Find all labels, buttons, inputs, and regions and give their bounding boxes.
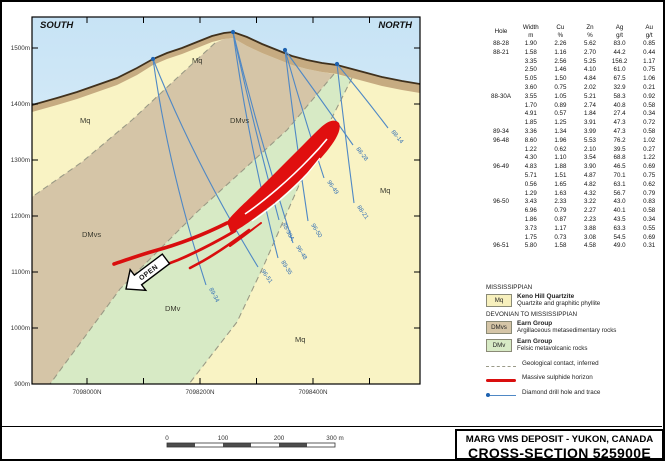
table-cell-zn: 4.10 <box>575 66 605 75</box>
table-cell-au: 0.58 <box>634 102 664 111</box>
table-cell-width: 3.55 <box>516 93 546 102</box>
table-cell-cu: 1.58 <box>546 242 576 251</box>
table-row: 96-50 3.43 2.33 3.22 43.0 0.83 <box>486 198 664 207</box>
table-cell-cu: 2.26 <box>546 40 576 49</box>
table-cell-au: 0.44 <box>634 49 664 58</box>
table-cell-au: 0.34 <box>634 110 664 119</box>
table-cell-hole <box>486 216 516 225</box>
table-cell-width: 1.75 <box>516 234 546 243</box>
table-cell-au: 0.92 <box>634 93 664 102</box>
table-cell-cu: 1.51 <box>546 172 576 181</box>
table-cell-au: 0.75 <box>634 66 664 75</box>
table-cell-hole: 89-34 <box>486 128 516 137</box>
table-cell-zn: 3.22 <box>575 198 605 207</box>
table-cell-ag: 32.9 <box>605 84 635 93</box>
unit-label-mq: Mq <box>380 186 390 195</box>
table-row: 88-28 1.90 2.26 5.62 83.0 0.85 <box>486 40 664 49</box>
table-cell-cu: 0.79 <box>546 207 576 216</box>
table-cell-hole: 88-30A <box>486 93 516 102</box>
northing-label: 7098400N <box>298 389 328 396</box>
legend-group-header: MISSISSIPPIAN <box>486 284 664 291</box>
col-header-cu: Cu <box>546 24 576 32</box>
table-cell-hole <box>486 110 516 119</box>
table-cell-cu: 1.10 <box>546 154 576 163</box>
table-cell-ag: 56.7 <box>605 190 635 199</box>
table-cell-zn: 2.74 <box>575 102 605 111</box>
figure-subtitle: MARG VMS DEPOSIT - YUKON, CANADA <box>457 434 662 445</box>
elevation-label: 1000m <box>11 325 30 332</box>
table-cell-width: 3.36 <box>516 128 546 137</box>
table-cell-cu: 0.87 <box>546 216 576 225</box>
elevation-label: 900m <box>14 381 30 388</box>
legend: MISSISSIPPIAN Mq Keno Hill Quartzite Qua… <box>486 284 664 402</box>
assay-table: Hole Width Cu Zn Ag Au m % % g/t g/t 88-… <box>486 24 664 251</box>
legend-symbol-label: Geological contact, inferred <box>522 360 599 367</box>
table-cell-au: 1.17 <box>634 58 664 67</box>
table-cell-ag: 47.3 <box>605 119 635 128</box>
table-cell-width: 1.22 <box>516 146 546 155</box>
table-cell-zn: 5.21 <box>575 93 605 102</box>
table-cell-zn: 2.23 <box>575 216 605 225</box>
table-cell-width: 1.58 <box>516 49 546 58</box>
table-row: 5.71 1.51 4.87 70.1 0.75 <box>486 172 664 181</box>
table-cell-width: 5.05 <box>516 75 546 84</box>
drill-collar-dot <box>231 30 235 34</box>
table-cell-au: 0.27 <box>634 146 664 155</box>
elevation-label: 1100m <box>11 269 30 276</box>
table-cell-width: 2.50 <box>516 66 546 75</box>
elevation-label: 1400m <box>11 101 30 108</box>
table-cell-ag: 46.5 <box>605 163 635 172</box>
northing-label: 7098000N <box>72 389 102 396</box>
table-cell-au: 0.62 <box>634 181 664 190</box>
table-cell-cu: 1.65 <box>546 181 576 190</box>
table-cell-zn: 4.82 <box>575 181 605 190</box>
table-cell-hole: 88-28 <box>486 40 516 49</box>
table-cell-au: 0.75 <box>634 172 664 181</box>
legend-unit-name: Keno Hill Quartzite <box>517 293 600 300</box>
table-cell-ag: 54.5 <box>605 234 635 243</box>
table-cell-cu: 0.62 <box>546 146 576 155</box>
table-cell-au: 0.21 <box>634 84 664 93</box>
table-cell-ag: 61.0 <box>605 66 635 75</box>
table-cell-au: 0.72 <box>634 119 664 128</box>
table-cell-au: 0.58 <box>634 207 664 216</box>
table-cell-hole: 96-51 <box>486 242 516 251</box>
table-cell-hole <box>486 66 516 75</box>
table-row: 1.70 0.89 2.74 40.8 0.58 <box>486 102 664 111</box>
figure-title: CROSS-SECTION 525900E <box>457 445 662 461</box>
legend-symbol-label: Massive sulphide horizon <box>522 374 593 381</box>
table-cell-ag: 156.2 <box>605 58 635 67</box>
table-cell-hole: 96-48 <box>486 137 516 146</box>
table-cell-hole <box>486 146 516 155</box>
table-cell-hole <box>486 190 516 199</box>
table-cell-au: 0.83 <box>634 198 664 207</box>
table-cell-au: 0.69 <box>634 234 664 243</box>
sulphide-line-sample <box>486 379 516 382</box>
table-cell-zn: 5.53 <box>575 137 605 146</box>
legend-unit-name: Earn Group <box>517 338 588 345</box>
title-block: MARG VMS DEPOSIT - YUKON, CANADA CROSS-S… <box>455 429 664 460</box>
table-row: 1.75 0.73 3.08 54.5 0.69 <box>486 234 664 243</box>
table-row: 5.05 1.50 4.84 67.5 1.06 <box>486 75 664 84</box>
table-cell-ag: 76.2 <box>605 137 635 146</box>
table-cell-cu: 0.57 <box>546 110 576 119</box>
table-cell-au: 0.79 <box>634 190 664 199</box>
table-cell-width: 3.43 <box>516 198 546 207</box>
table-cell-cu: 1.50 <box>546 75 576 84</box>
col-unit-ag: g/t <box>605 32 635 40</box>
table-cell-cu: 0.89 <box>546 102 576 111</box>
scale-label: 100 <box>218 435 229 442</box>
legend-symbol-sulphide: Massive sulphide horizon <box>486 373 664 382</box>
table-row: 1.22 0.62 2.10 39.5 0.27 <box>486 146 664 155</box>
table-cell-hole <box>486 84 516 93</box>
drill-collar-dot <box>151 57 155 61</box>
col-header-width: Width <box>516 24 546 32</box>
table-cell-au: 0.85 <box>634 40 664 49</box>
table-row: 3.73 1.17 3.88 63.3 0.55 <box>486 225 664 234</box>
table-cell-cu: 1.96 <box>546 137 576 146</box>
table-cell-hole: 96-49 <box>486 163 516 172</box>
table-cell-cu: 0.73 <box>546 234 576 243</box>
table-cell-zn: 4.87 <box>575 172 605 181</box>
table-cell-ag: 40.1 <box>605 207 635 216</box>
table-cell-ag: 70.1 <box>605 172 635 181</box>
table-cell-hole <box>486 102 516 111</box>
unit-label-mq: Mq <box>295 335 305 344</box>
unit-label-mq: Mq <box>192 56 202 65</box>
table-cell-cu: 1.17 <box>546 225 576 234</box>
table-cell-hole <box>486 75 516 84</box>
col-unit-zn: % <box>575 32 605 40</box>
col-header-ag: Ag <box>605 24 635 32</box>
table-row: 96-48 8.60 1.96 5.53 76.2 1.02 <box>486 137 664 146</box>
table-cell-zn: 3.54 <box>575 154 605 163</box>
table-cell-cu: 1.46 <box>546 66 576 75</box>
table-row: 96-51 5.80 1.58 4.58 49.0 0.31 <box>486 242 664 251</box>
cross-section-figure: OPEN 1500m 1400m 1300m 1200m 1100m 1000m… <box>0 0 665 461</box>
table-cell-au: 0.58 <box>634 128 664 137</box>
table-cell-width: 3.60 <box>516 84 546 93</box>
table-cell-ag: 43.0 <box>605 198 635 207</box>
unit-label-dmvs: DMvs <box>230 116 249 125</box>
table-cell-cu: 1.34 <box>546 128 576 137</box>
table-cell-width: 6.96 <box>516 207 546 216</box>
scale-label: 200 <box>274 435 285 442</box>
table-cell-width: 3.35 <box>516 58 546 67</box>
col-unit-cu: % <box>546 32 576 40</box>
dmvs-swatch: DMvs <box>486 321 512 334</box>
legend-item-dmvs: DMvs Earn Group Argillaceous metasedimen… <box>486 320 664 334</box>
table-cell-width: 0.56 <box>516 181 546 190</box>
table-cell-hole <box>486 225 516 234</box>
table-cell-hole <box>486 119 516 128</box>
table-cell-hole: 96-50 <box>486 198 516 207</box>
table-cell-width: 8.60 <box>516 137 546 146</box>
table-cell-zn: 4.32 <box>575 190 605 199</box>
table-cell-hole <box>486 172 516 181</box>
col-header-hole: Hole <box>486 24 516 40</box>
table-row: 4.91 0.57 1.84 27.4 0.34 <box>486 110 664 119</box>
table-row: 2.50 1.46 4.10 61.0 0.75 <box>486 66 664 75</box>
table-cell-zn: 5.62 <box>575 40 605 49</box>
table-row: 3.60 0.75 2.02 32.9 0.21 <box>486 84 664 93</box>
legend-unit-name: Earn Group <box>517 320 616 327</box>
table-cell-au: 1.22 <box>634 154 664 163</box>
table-row: 1.85 1.25 3.91 47.3 0.72 <box>486 119 664 128</box>
legend-symbol-drill: Diamond drill hole and trace <box>486 388 664 396</box>
table-cell-width: 4.83 <box>516 163 546 172</box>
scale-label: 300 m <box>326 435 344 442</box>
scale-bar: 0 100 200 300 m <box>165 435 344 447</box>
table-cell-cu: 1.16 <box>546 49 576 58</box>
contact-line-sample <box>486 366 516 367</box>
table-cell-ag: 27.4 <box>605 110 635 119</box>
table-cell-cu: 1.63 <box>546 190 576 199</box>
northing-label: 7098200N <box>185 389 215 396</box>
table-cell-hole <box>486 234 516 243</box>
table-cell-width: 1.70 <box>516 102 546 111</box>
table-cell-zn: 5.25 <box>575 58 605 67</box>
table-row: 0.56 1.65 4.82 63.1 0.62 <box>486 181 664 190</box>
table-cell-ag: 63.1 <box>605 181 635 190</box>
table-cell-hole <box>486 181 516 190</box>
table-cell-cu: 1.05 <box>546 93 576 102</box>
table-row: 6.96 0.79 2.27 40.1 0.58 <box>486 207 664 216</box>
table-cell-width: 4.91 <box>516 110 546 119</box>
table-cell-width: 4.30 <box>516 154 546 163</box>
table-cell-cu: 2.33 <box>546 198 576 207</box>
table-row: 4.30 1.10 3.54 68.8 1.22 <box>486 154 664 163</box>
dmv-swatch: DMv <box>486 339 512 352</box>
table-row: 3.35 2.56 5.25 156.2 1.17 <box>486 58 664 67</box>
table-row: 89-34 3.36 1.34 3.99 47.3 0.58 <box>486 128 664 137</box>
table-cell-cu: 0.75 <box>546 84 576 93</box>
table-cell-ag: 43.5 <box>605 216 635 225</box>
legend-unit-desc: Quartzite and graphitic phyllite <box>517 300 600 307</box>
table-cell-ag: 68.8 <box>605 154 635 163</box>
legend-item-dmv: DMv Earn Group Felsic metavolcanic rocks <box>486 338 664 352</box>
drill-line-sample <box>486 395 516 396</box>
table-cell-zn: 3.90 <box>575 163 605 172</box>
table-cell-hole <box>486 207 516 216</box>
legend-item-mq: Mq Keno Hill Quartzite Quartzite and gra… <box>486 293 664 307</box>
legend-unit-desc: Felsic metavolcanic rocks <box>517 345 588 352</box>
col-unit-au: g/t <box>634 32 664 40</box>
legend-symbol-contact: Geological contact, inferred <box>486 359 664 367</box>
south-label: SOUTH <box>40 20 74 31</box>
table-cell-width: 3.73 <box>516 225 546 234</box>
table-cell-ag: 40.8 <box>605 102 635 111</box>
table-cell-zn: 2.10 <box>575 146 605 155</box>
elevation-label: 1300m <box>11 157 30 164</box>
table-cell-width: 1.29 <box>516 190 546 199</box>
drill-collar-dot <box>335 62 339 66</box>
table-cell-hole: 88-21 <box>486 49 516 58</box>
elevation-label: 1500m <box>11 45 30 52</box>
table-cell-ag: 67.5 <box>605 75 635 84</box>
table-cell-ag: 39.5 <box>605 146 635 155</box>
unit-label-dmvs: DMvs <box>82 230 101 239</box>
table-cell-ag: 83.0 <box>605 40 635 49</box>
table-cell-zn: 4.84 <box>575 75 605 84</box>
mq-swatch: Mq <box>486 294 512 307</box>
table-cell-width: 1.85 <box>516 119 546 128</box>
table-row: 88-21 1.58 1.16 2.70 44.2 0.44 <box>486 49 664 58</box>
legend-group-header: DEVONIAN TO MISSISSIPPIAN <box>486 311 664 318</box>
col-header-au: Au <box>634 24 664 32</box>
table-row: 1.29 1.63 4.32 56.7 0.79 <box>486 190 664 199</box>
table-row: 88-30A 3.55 1.05 5.21 58.3 0.92 <box>486 93 664 102</box>
table-cell-ag: 47.3 <box>605 128 635 137</box>
table-cell-zn: 3.99 <box>575 128 605 137</box>
table-cell-zn: 2.02 <box>575 84 605 93</box>
table-cell-width: 1.86 <box>516 216 546 225</box>
table-cell-ag: 63.3 <box>605 225 635 234</box>
legend-symbol-label: Diamond drill hole and trace <box>522 389 600 396</box>
table-row: 96-49 4.83 1.88 3.90 46.5 0.69 <box>486 163 664 172</box>
table-cell-au: 0.69 <box>634 163 664 172</box>
table-cell-au: 0.31 <box>634 242 664 251</box>
scale-label: 0 <box>165 435 169 442</box>
table-cell-au: 0.34 <box>634 216 664 225</box>
legend-unit-desc: Argillaceous metasedimentary rocks <box>517 327 616 334</box>
table-cell-cu: 1.25 <box>546 119 576 128</box>
col-header-zn: Zn <box>575 24 605 32</box>
col-unit-width: m <box>516 32 546 40</box>
table-cell-zn: 1.84 <box>575 110 605 119</box>
table-cell-zn: 4.58 <box>575 242 605 251</box>
table-cell-zn: 2.27 <box>575 207 605 216</box>
table-cell-au: 1.02 <box>634 137 664 146</box>
table-cell-zn: 3.91 <box>575 119 605 128</box>
table-cell-zn: 2.70 <box>575 49 605 58</box>
table-cell-width: 1.90 <box>516 40 546 49</box>
table-cell-au: 0.55 <box>634 225 664 234</box>
unit-label-mq: Mq <box>80 116 90 125</box>
drill-collar-dot <box>283 48 287 52</box>
table-cell-hole <box>486 58 516 67</box>
table-cell-width: 5.71 <box>516 172 546 181</box>
table-cell-hole <box>486 154 516 163</box>
table-cell-ag: 49.0 <box>605 242 635 251</box>
unit-label-dmv: DMv <box>165 304 181 313</box>
table-cell-zn: 3.88 <box>575 225 605 234</box>
table-cell-width: 5.80 <box>516 242 546 251</box>
table-cell-ag: 58.3 <box>605 93 635 102</box>
table-cell-au: 1.06 <box>634 75 664 84</box>
table-cell-cu: 2.56 <box>546 58 576 67</box>
table-cell-ag: 44.2 <box>605 49 635 58</box>
elevation-label: 1200m <box>11 213 30 220</box>
table-cell-zn: 3.08 <box>575 234 605 243</box>
table-row: 1.86 0.87 2.23 43.5 0.34 <box>486 216 664 225</box>
table-cell-cu: 1.88 <box>546 163 576 172</box>
north-label: NORTH <box>378 20 413 31</box>
